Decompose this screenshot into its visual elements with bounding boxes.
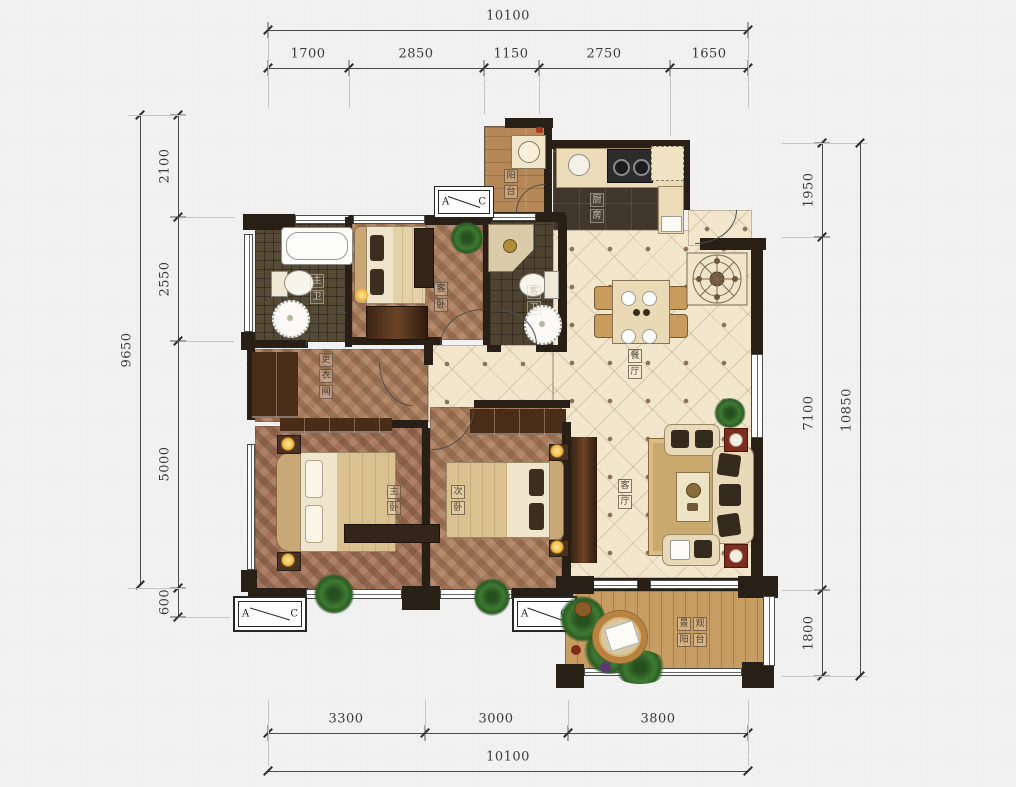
dim-line xyxy=(822,143,823,676)
tick-guide xyxy=(484,60,485,76)
wall xyxy=(487,345,501,352)
dim-line xyxy=(268,771,748,772)
side-table xyxy=(724,544,748,568)
wall xyxy=(738,576,778,598)
window xyxy=(295,215,349,224)
dim-line xyxy=(860,143,861,676)
window xyxy=(492,213,536,221)
room-label-char: 台 xyxy=(693,633,707,647)
room-label-char: 厅 xyxy=(618,495,632,509)
dim-top-total: 10100 xyxy=(486,9,530,24)
dim-top-1: 1700 xyxy=(290,47,325,62)
room-label-char: 更 xyxy=(319,353,333,367)
centerpiece xyxy=(633,309,640,316)
bedside-lamp xyxy=(355,288,369,302)
room-label-char: 主 xyxy=(387,485,401,499)
dim-right-3: 1800 xyxy=(802,615,817,650)
ext-line xyxy=(349,76,350,108)
window xyxy=(751,354,763,438)
section-label-a: A xyxy=(521,609,528,620)
pedestal-sink xyxy=(272,300,310,338)
section-label-a: A xyxy=(242,609,249,620)
room-label-char: 卧 xyxy=(434,298,448,312)
balcony-door-window xyxy=(588,580,638,589)
pillow xyxy=(529,469,544,496)
tick-guide xyxy=(268,22,269,38)
section-label-c: C xyxy=(478,197,486,208)
dim-bottom-2: 3000 xyxy=(478,712,513,727)
centerpiece xyxy=(643,309,650,316)
bathtub-basin xyxy=(286,232,348,260)
room-label-second-bedroom: 次卧 xyxy=(451,484,465,516)
plant xyxy=(450,222,484,254)
ext-line xyxy=(782,590,814,591)
sofa xyxy=(712,446,754,544)
room-label-char: 餐 xyxy=(628,349,642,363)
window xyxy=(244,234,253,332)
bedside-lamp xyxy=(550,444,564,458)
ext-line xyxy=(484,76,485,114)
cushion xyxy=(719,484,741,506)
decor-pot xyxy=(600,662,611,673)
tick-guide xyxy=(349,60,350,76)
plant xyxy=(714,398,746,428)
ext-line xyxy=(782,676,868,677)
room-label-guest-bedroom: 客卧 xyxy=(434,281,448,313)
decor-basket xyxy=(574,601,592,617)
room-label-char: 卧 xyxy=(451,501,465,515)
room-label-char: 客 xyxy=(434,282,448,296)
balcony-railing xyxy=(763,596,775,666)
wall xyxy=(424,345,433,365)
tv-cabinet xyxy=(571,437,597,563)
toilet-tank xyxy=(544,271,559,299)
wall xyxy=(402,586,440,610)
side-table-vase xyxy=(729,549,743,563)
tick-guide xyxy=(170,341,186,342)
ext-line xyxy=(748,38,749,108)
floor-plan-canvas: A C A C A C xyxy=(0,0,1016,787)
burner xyxy=(613,159,630,176)
room-label-char: 台 xyxy=(504,185,518,199)
section-label-c: C xyxy=(290,609,298,620)
fridge xyxy=(651,146,684,181)
bedside-lamp xyxy=(550,540,564,554)
laundry-sink xyxy=(511,135,546,169)
window xyxy=(247,444,255,570)
plate xyxy=(642,329,657,344)
balcony-pillar xyxy=(556,664,584,688)
tick-guide xyxy=(670,60,671,76)
plate xyxy=(621,329,636,344)
room-label-char: 主 xyxy=(310,274,324,288)
burner xyxy=(633,159,650,176)
ext-line xyxy=(186,617,230,618)
ext-line xyxy=(568,700,569,728)
bedside-lamp xyxy=(281,437,295,451)
bench-seat xyxy=(662,534,720,566)
room-label-master-bath: 主卫 xyxy=(310,273,324,305)
room-label-char: 卧 xyxy=(387,501,401,515)
cushion xyxy=(717,453,742,478)
room-label-char: 景 xyxy=(677,617,691,631)
stove xyxy=(607,149,653,183)
coffee-table xyxy=(676,472,710,522)
plant xyxy=(314,574,354,614)
foot-bench xyxy=(344,524,440,543)
ext-line xyxy=(748,700,749,766)
ext-line xyxy=(186,217,234,218)
pillow xyxy=(370,269,384,295)
dim-left-3: 5000 xyxy=(158,446,173,481)
loveseat xyxy=(664,424,720,456)
tick-guide xyxy=(814,590,830,591)
cushion xyxy=(695,430,713,448)
pillow xyxy=(305,505,323,543)
wall xyxy=(474,400,570,408)
room-label-living: 客厅 xyxy=(618,478,632,510)
room-label-dining: 餐厅 xyxy=(628,348,642,380)
rattan-chair xyxy=(592,610,648,664)
ext-line xyxy=(782,237,814,238)
plant xyxy=(474,578,510,616)
dim-bottom-1: 3300 xyxy=(328,712,363,727)
wall xyxy=(392,420,428,428)
dim-line xyxy=(268,733,748,734)
bed-headboard xyxy=(548,460,564,540)
dim-left-2: 2550 xyxy=(158,261,173,296)
tick-guide xyxy=(539,60,540,76)
dim-line xyxy=(268,30,748,31)
dim-line xyxy=(178,115,179,617)
cushion xyxy=(694,540,712,558)
room-label-char: 阳 xyxy=(677,633,691,647)
tick-guide xyxy=(170,617,186,618)
dim-top-4: 2750 xyxy=(586,47,621,62)
dim-left-4: 600 xyxy=(158,589,173,615)
table-decor xyxy=(686,483,701,498)
dim-top-3: 1150 xyxy=(493,47,528,62)
bedside-lamp xyxy=(281,553,295,567)
wall xyxy=(505,118,553,128)
tick-guide xyxy=(170,217,186,218)
room-label-char: 衣 xyxy=(319,369,333,383)
ext-line xyxy=(425,700,426,728)
room-label-char: 客 xyxy=(618,479,632,493)
room-label-char: 次 xyxy=(451,485,465,499)
laundry-basin xyxy=(518,141,540,163)
plate xyxy=(642,291,657,306)
dim-right-1: 1950 xyxy=(802,172,817,207)
shower-drain xyxy=(503,239,517,253)
cushion xyxy=(671,430,689,448)
ext-line xyxy=(268,38,269,108)
dim-line xyxy=(268,68,748,69)
table-decor xyxy=(687,503,698,511)
section-marker: A C xyxy=(438,190,490,214)
dresser xyxy=(366,306,428,340)
room-label-char: 客 xyxy=(527,285,541,299)
side-table-vase xyxy=(729,433,743,447)
medallion-rug xyxy=(686,252,748,306)
pillow xyxy=(529,503,544,530)
chair-towel xyxy=(604,620,640,652)
dim-left-total: 9650 xyxy=(120,332,135,367)
cushion xyxy=(670,540,690,560)
section-marker: A C xyxy=(238,601,302,627)
bay-window: A C xyxy=(233,596,307,632)
room-label-char: 厨 xyxy=(590,193,604,207)
pillow xyxy=(370,235,384,261)
balcony-door-window xyxy=(650,580,740,589)
cushion xyxy=(717,513,742,538)
wall xyxy=(751,246,763,354)
room-label-char: 阳 xyxy=(504,169,518,183)
wall xyxy=(250,340,308,348)
dim-top-5: 1650 xyxy=(691,47,726,62)
potted-accent xyxy=(536,127,543,133)
ext-line xyxy=(670,76,671,136)
room-label-char: 厅 xyxy=(628,365,642,379)
room-label-char: 间 xyxy=(319,385,333,399)
dressing-wardrobe xyxy=(252,352,298,418)
room-label-view-balcony: 景观阳台 xyxy=(676,616,708,648)
tick-guide xyxy=(814,237,830,238)
second-bedroom-wardrobe xyxy=(470,409,566,435)
dim-line xyxy=(140,115,141,585)
room-label-master-bedroom: 主卧 xyxy=(387,484,401,516)
dim-top-2: 2850 xyxy=(398,47,433,62)
room-label-char: 卫 xyxy=(310,290,324,304)
dim-right-total: 10850 xyxy=(840,388,855,432)
ext-line xyxy=(186,341,234,342)
pillow xyxy=(305,460,323,498)
ext-line xyxy=(539,76,540,114)
sink-drain xyxy=(287,315,293,321)
dim-left-1: 2100 xyxy=(158,148,173,183)
kitchen-sink xyxy=(568,154,590,176)
room-label-balcony: 阳台 xyxy=(504,168,518,200)
side-table xyxy=(724,428,748,452)
dim-bottom-total: 10100 xyxy=(486,750,530,765)
room-label-guest-bath: 客卫 xyxy=(527,284,541,316)
decor-pot xyxy=(571,645,581,655)
room-label-dressing: 更衣间 xyxy=(319,352,333,400)
window xyxy=(353,215,425,224)
tick-guide xyxy=(748,22,749,38)
bathtub xyxy=(281,227,353,265)
master-wardrobe xyxy=(280,418,392,433)
ext-line xyxy=(268,700,269,766)
dim-right-2: 7100 xyxy=(802,395,817,430)
dining-table xyxy=(612,280,670,344)
section-label-a: A xyxy=(442,197,449,208)
wall xyxy=(422,428,430,596)
ext-line xyxy=(782,143,868,144)
room-label-char: 房 xyxy=(590,209,604,223)
ext-line xyxy=(128,115,186,116)
plate xyxy=(621,291,636,306)
room-label-char: 卫 xyxy=(527,301,541,315)
dim-bottom-3: 3800 xyxy=(640,712,675,727)
room-label-char: 观 xyxy=(693,617,707,631)
section-marker-box: A C xyxy=(434,186,494,218)
sink-drain xyxy=(539,321,545,327)
side-bench xyxy=(414,228,434,288)
room-label-kitchen: 厨房 xyxy=(590,192,604,224)
prep-sink xyxy=(661,216,682,232)
